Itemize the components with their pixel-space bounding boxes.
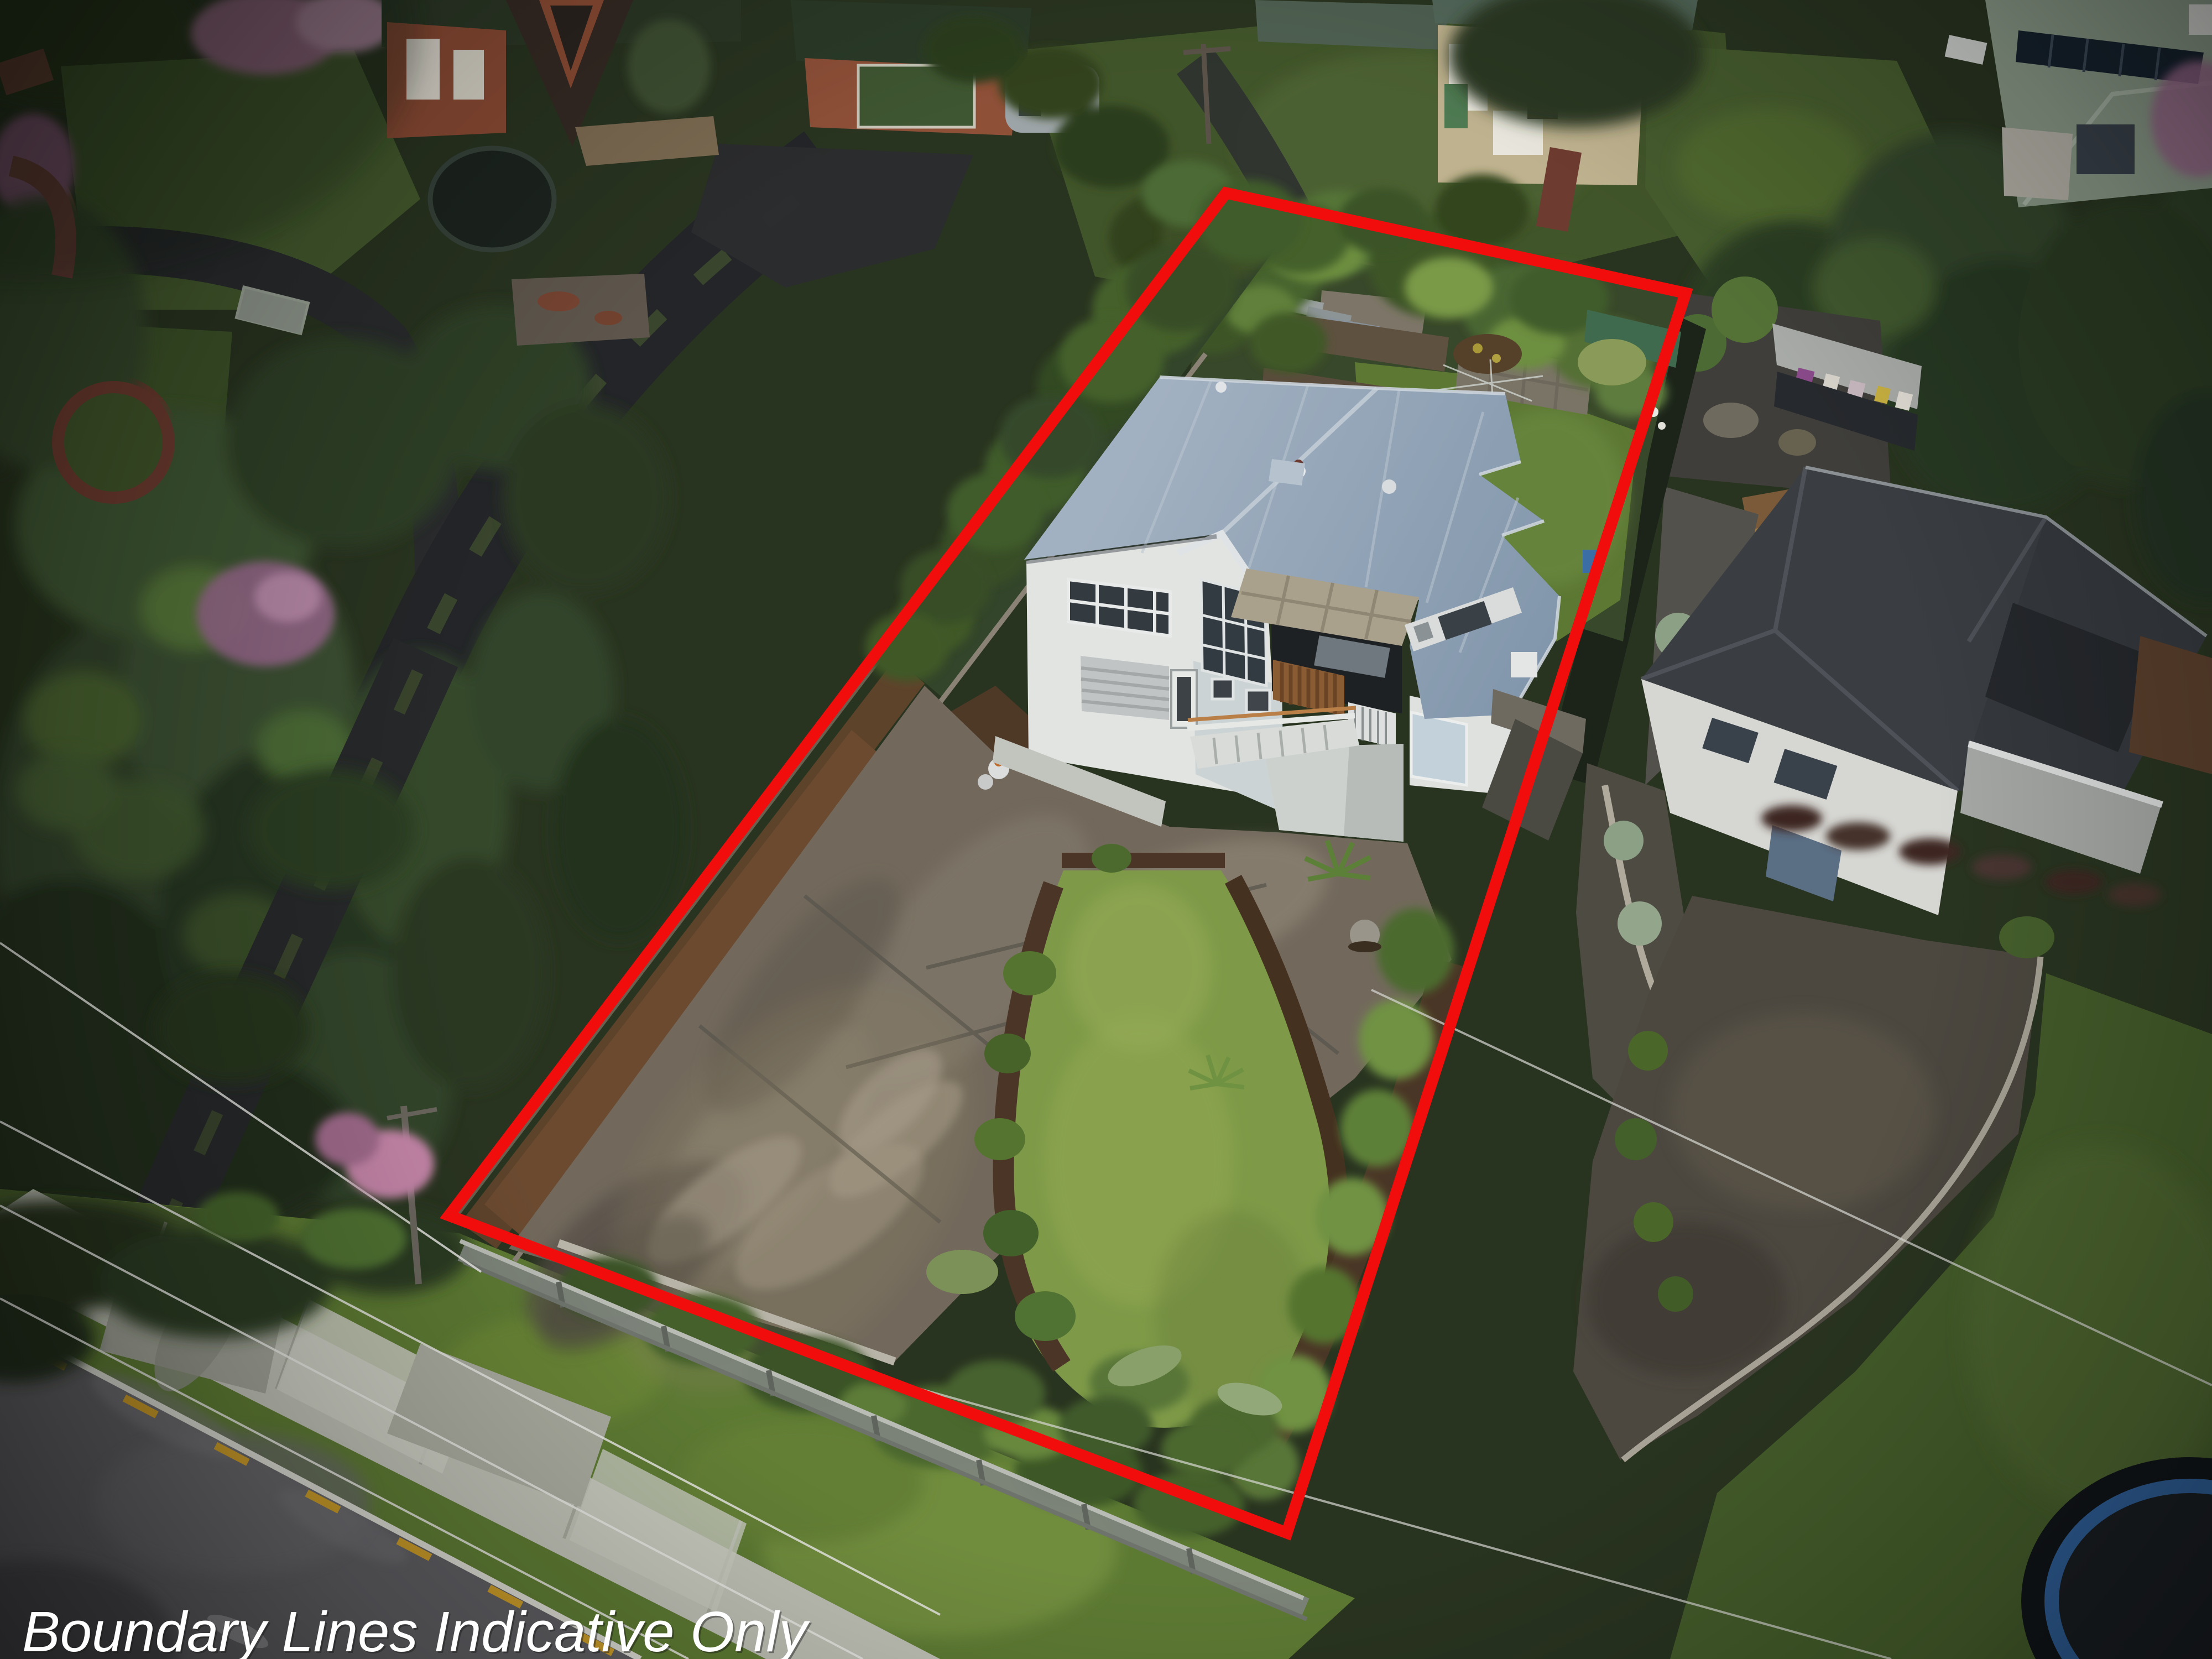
svg-text:Boundary Lines Indicative Only: Boundary Lines Indicative Only bbox=[22, 1600, 810, 1659]
